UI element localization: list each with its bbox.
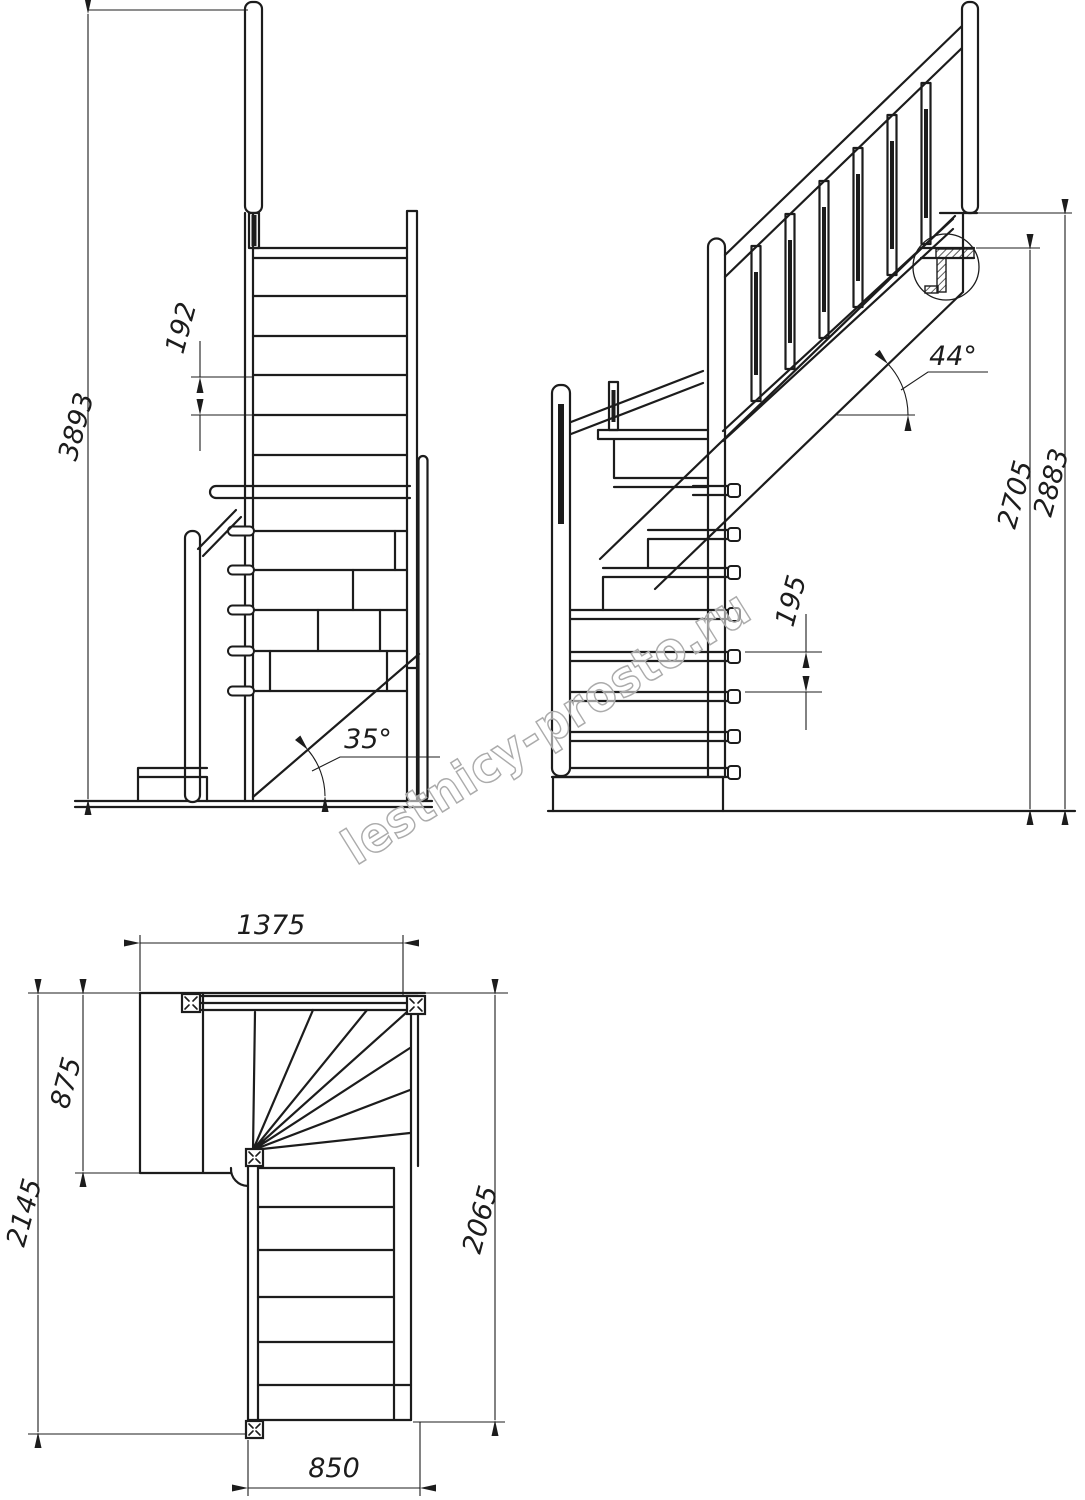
plan-flight-stringer [248,1168,411,1420]
side-riser-dim-label: 195 [770,572,813,630]
front-riser-dim-label: 192 [160,299,203,357]
plan-winder-curve [231,1168,248,1186]
front-top-baluster-slot [252,215,257,246]
watermark: lestnicy-prosto.ru [332,579,761,876]
side-tread-detail [913,234,979,300]
plan-winder-fan [253,1010,410,1150]
front-upper-treads [253,296,407,455]
plan-dim-landing-depth: 875 [45,995,140,1173]
front-dim-riser: 192 [160,299,253,451]
side-dim-height-floor: 2883 [1028,215,1076,809]
front-winder-treads [254,531,407,691]
height-to-floor-dim-label: 2883 [1028,445,1076,519]
side-balusters [752,83,931,401]
side-plinth [553,777,723,811]
side-lower-newel-slot [558,404,564,524]
front-tread-tabs [228,527,254,696]
side-dim-height-tread: 2705 [976,248,1040,809]
plan-landing [140,993,231,1173]
total-depth-dim-label: 2145 [1,1175,49,1249]
blueprint-canvas: 3893 192 35° [0,0,1085,1500]
side-dim-riser: 195 [745,572,822,730]
plan-flight-treads [258,1168,394,1385]
watermark-text: lestnicy-prosto.ru [332,579,761,876]
front-winder-handrail [210,486,410,498]
flight-width-dim-label: 850 [308,1453,360,1484]
front-view: 3893 192 35° [53,2,440,807]
plan-top-rail [200,996,418,1014]
front-left-stringer [245,213,253,801]
plan-dim-width-top: 1375 [140,910,403,995]
front-inclined-stringer [253,654,419,797]
front-angle-label: 35° [344,724,392,755]
plan-flight-left-rail [248,1166,258,1421]
side-angle-annotation: 44° [837,341,988,415]
side-angle-label: 44° [929,341,977,372]
front-lower-newel-post [185,531,200,802]
front-dim-total-height: 3893 [53,10,248,799]
side-top-newel-post [962,2,978,213]
front-right-stringer [407,211,417,801]
plan-view: 1375 875 2145 2065 850 [1,910,508,1496]
staircase-drawing: 3893 192 35° [0,0,1085,1500]
side-central-newel-post [708,239,725,778]
front-top-newel-post [245,2,262,213]
side-lower-handrail [571,371,703,434]
front-top-tread [253,248,407,258]
plan-right-edge [411,1014,418,1420]
plan-dim-flight-width: 850 [248,1422,420,1496]
landing-depth-dim-label: 875 [45,1054,88,1112]
plan-newel-posts [182,994,425,1438]
plan-dim-flight-length: 2065 [413,995,505,1422]
total-height-dim-label: 3893 [53,389,101,463]
plan-dim-total-depth: 2145 [1,995,246,1434]
side-upper-steps [598,382,740,497]
front-far-newel-post [419,456,428,801]
upper-flight-width-dim-label: 1375 [237,910,306,941]
flight-length-dim-label: 2065 [457,1182,505,1256]
